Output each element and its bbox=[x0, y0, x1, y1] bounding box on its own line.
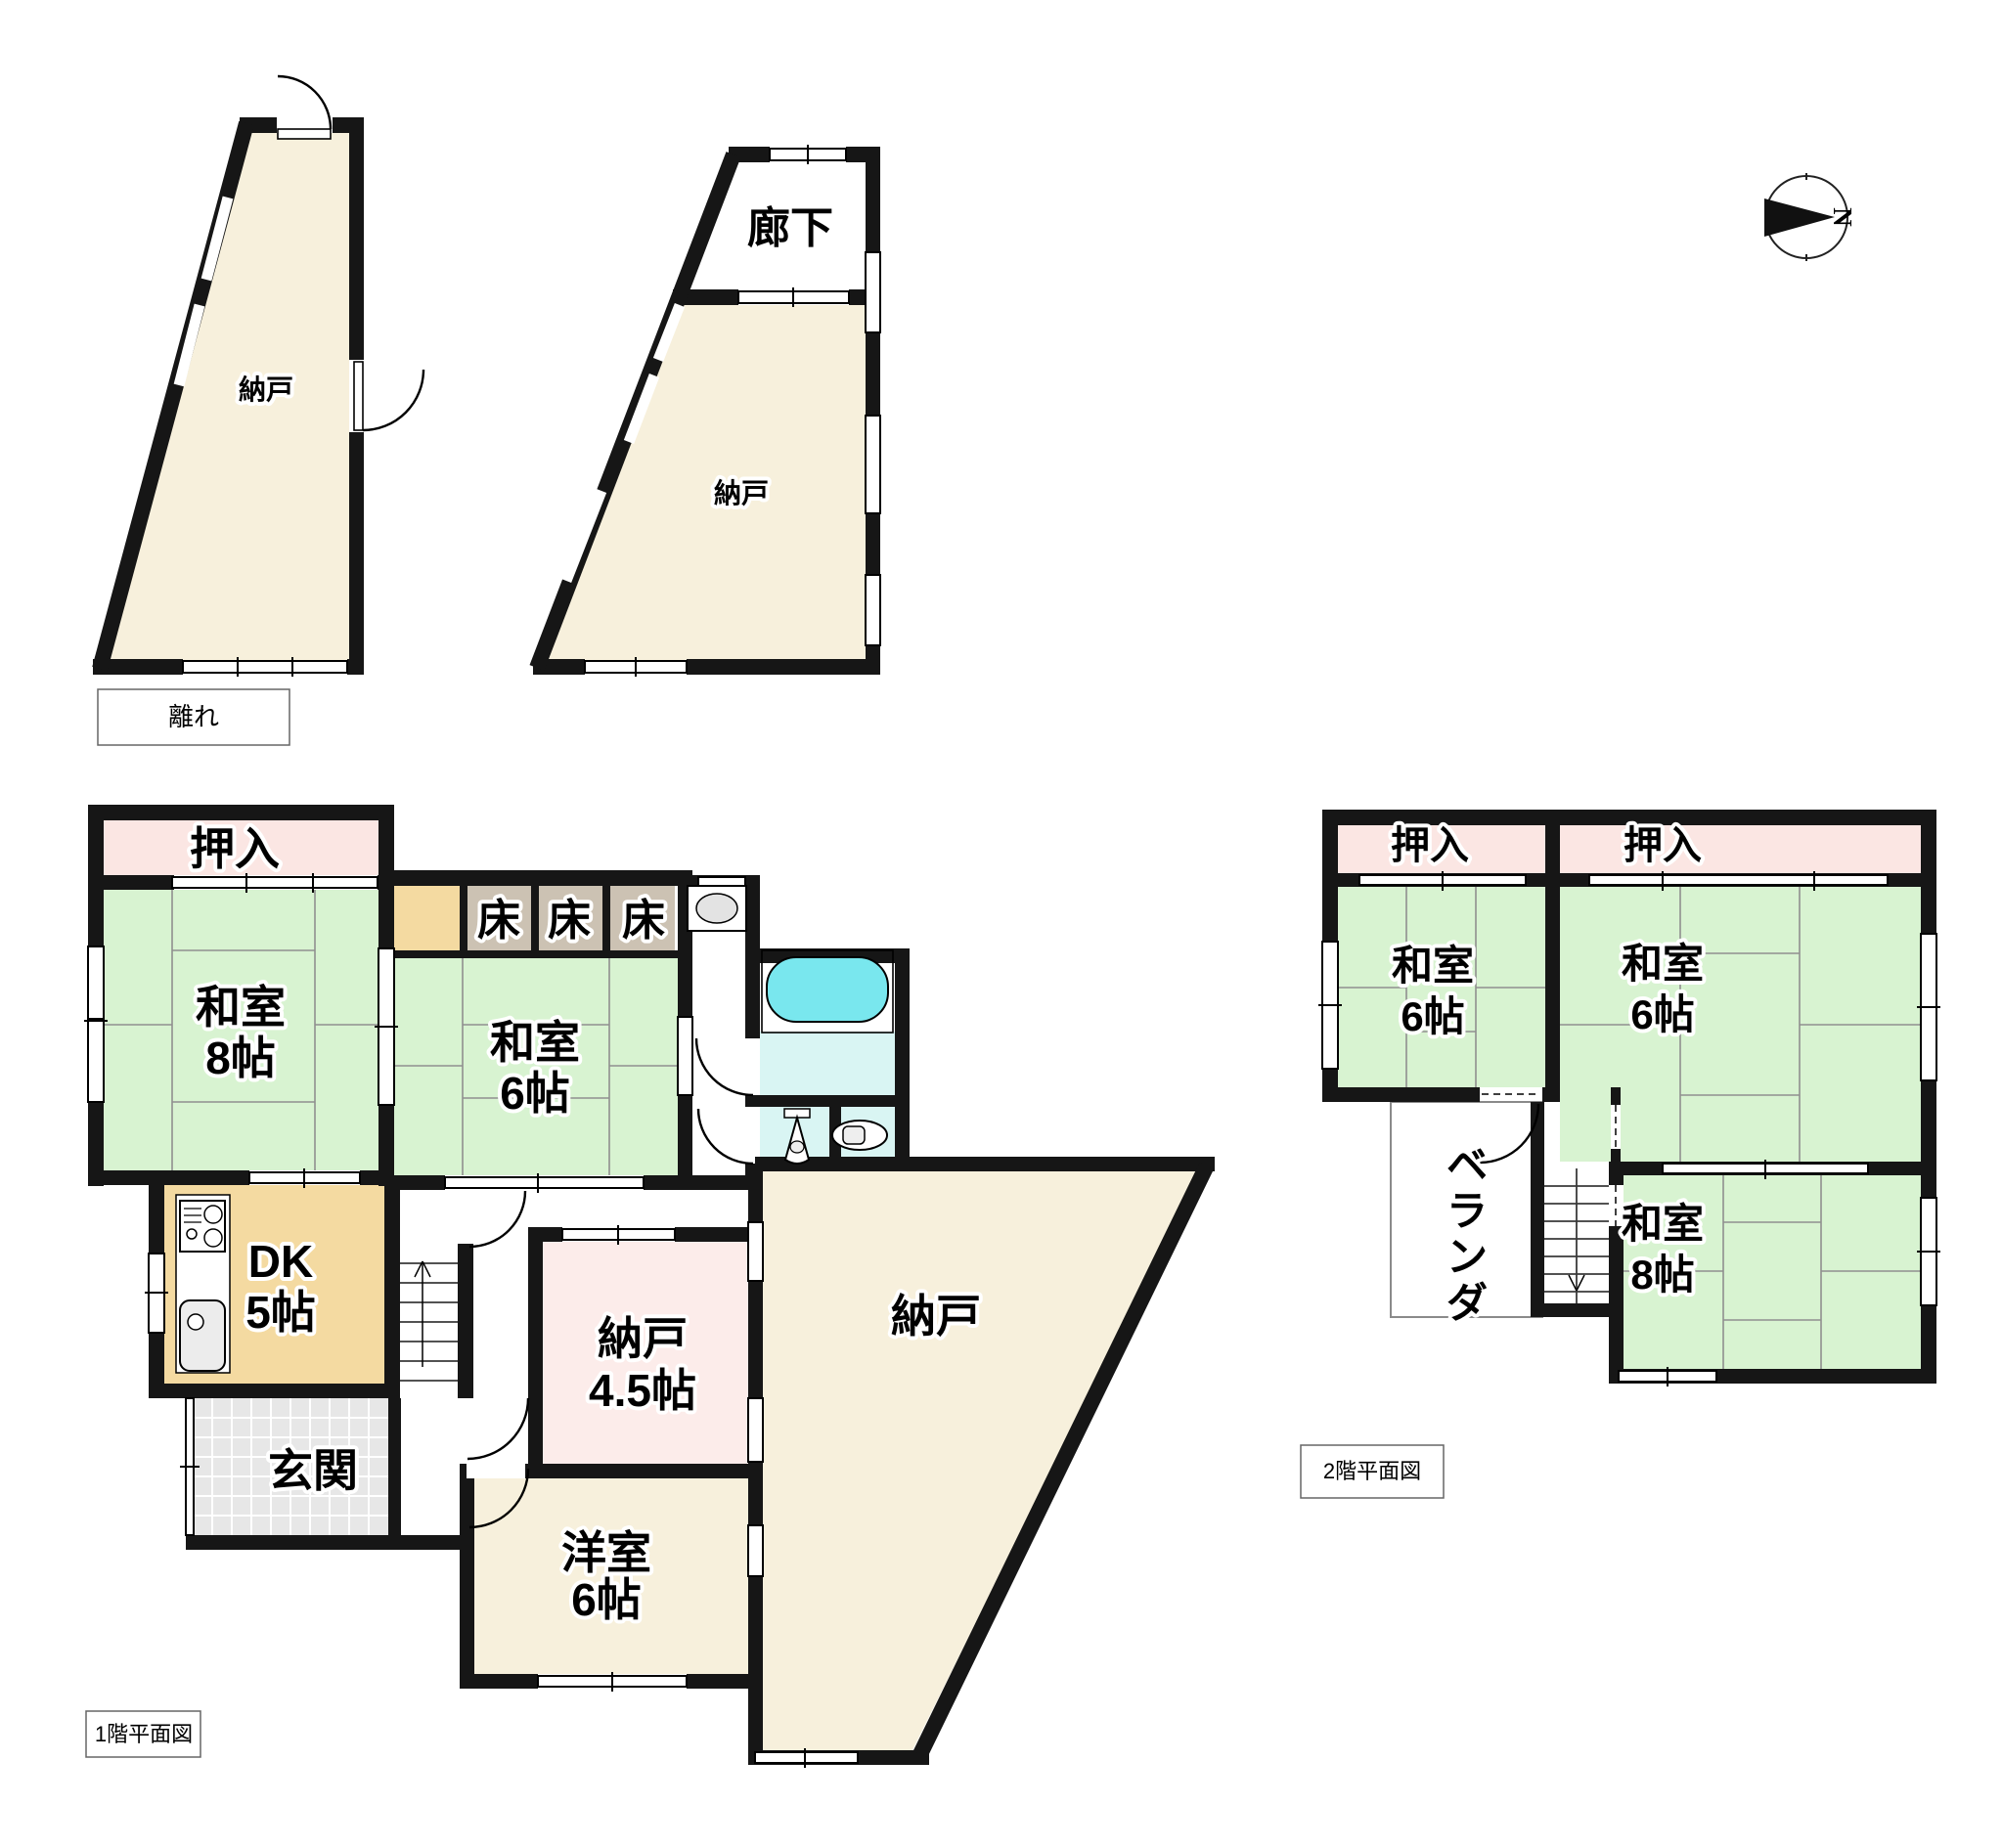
f1-washitsu8-size: 8帖 bbox=[205, 1033, 276, 1083]
f2-caption: 2階平面図 bbox=[1301, 1445, 1444, 1498]
f1-youshitsu-size: 6帖 bbox=[571, 1574, 642, 1625]
f2-washitsu6r-size: 6帖 bbox=[1630, 991, 1694, 1037]
room-f2-oshiire-right bbox=[1560, 825, 1921, 873]
door-arc bbox=[698, 1109, 753, 1164]
f1-washitsu6-name: 和室 bbox=[490, 1017, 580, 1068]
annex-building: 納戸 廊下 納戸 離れ bbox=[93, 76, 880, 745]
room-f1-nando bbox=[763, 1171, 1199, 1750]
annex-room2-label: 納戸 bbox=[714, 477, 769, 508]
annex-room2 bbox=[539, 305, 872, 661]
kitchen-counter bbox=[176, 1195, 230, 1373]
stairs-down-icon bbox=[1544, 1168, 1609, 1303]
f1-toko2-label: 床 bbox=[548, 897, 591, 945]
annex-caption: 離れ bbox=[98, 689, 289, 745]
f1-washitsu8-name: 和室 bbox=[196, 982, 286, 1033]
toilet-icon bbox=[832, 1121, 887, 1150]
door-arc bbox=[467, 1398, 528, 1459]
f2-washitsu8-size: 8帖 bbox=[1630, 1252, 1694, 1298]
floor1-plan: 押入 和室 8帖 床 床 床 和室 6帖 DK 5帖 玄関 納戸 4.5帖 洋室… bbox=[84, 805, 1215, 1768]
f1-genkan-label: 玄関 bbox=[268, 1445, 358, 1496]
svg-text:ベ: ベ bbox=[1446, 1142, 1488, 1188]
f2-washitsu6r-name: 和室 bbox=[1622, 941, 1704, 987]
floorplan-page: 納戸 廊下 納戸 離れ N bbox=[0, 0, 2002, 1848]
annex-caption-text: 離れ bbox=[168, 702, 219, 731]
f1-dk-name: DK bbox=[248, 1236, 313, 1287]
f2-washitsu6l-name: 和室 bbox=[1392, 943, 1474, 989]
stairs-up-icon bbox=[400, 1261, 458, 1381]
bathtub-icon bbox=[762, 950, 893, 1033]
annex-corridor-label: 廊下 bbox=[747, 204, 833, 252]
sink-icon bbox=[180, 1300, 225, 1371]
stove-icon bbox=[180, 1201, 225, 1252]
floorplan-drawing: 納戸 廊下 納戸 離れ N bbox=[0, 0, 2002, 1848]
f1-toko3-label: 床 bbox=[622, 897, 665, 945]
svg-text:ン: ン bbox=[1446, 1234, 1488, 1280]
floor2-plan: 押入 押入 和室 6帖 和室 6帖 和室 8帖 ベ ラ ン ダ 2階平面図 bbox=[1301, 810, 1940, 1498]
compass-icon: N bbox=[1764, 173, 1857, 261]
f1-oshiire-label: 押入 bbox=[190, 823, 280, 874]
f1-nando45-size: 4.5帖 bbox=[589, 1365, 696, 1416]
annex-room1-label: 納戸 bbox=[239, 374, 293, 405]
room-f1-bath-floor bbox=[760, 1032, 895, 1095]
door-arc bbox=[696, 1038, 753, 1095]
compass-north-label: N bbox=[1828, 207, 1857, 227]
f2-washitsu6l-size: 6帖 bbox=[1401, 993, 1464, 1039]
f1-toko1-label: 床 bbox=[477, 897, 520, 945]
washbasin-icon bbox=[688, 886, 746, 931]
f1-nando-label: 納戸 bbox=[891, 1291, 981, 1342]
door-arc bbox=[469, 1191, 525, 1247]
svg-text:ダ: ダ bbox=[1446, 1280, 1488, 1326]
f1-washitsu6-size: 6帖 bbox=[500, 1068, 570, 1119]
f2-veranda-label: ベ ラ ン ダ bbox=[1446, 1142, 1488, 1326]
f2-washitsu8-name: 和室 bbox=[1622, 1201, 1704, 1247]
svg-text:ラ: ラ bbox=[1446, 1188, 1488, 1234]
door-arc bbox=[363, 370, 423, 430]
f1-youshitsu-name: 洋室 bbox=[561, 1527, 651, 1578]
f2-caption-text: 2階平面図 bbox=[1323, 1459, 1421, 1483]
f2-oshiire-left-label: 押入 bbox=[1391, 824, 1469, 867]
f1-caption-text: 1階平面図 bbox=[95, 1722, 193, 1746]
f1-nando45-name: 納戸 bbox=[598, 1313, 688, 1364]
f1-caption: 1階平面図 bbox=[86, 1711, 200, 1757]
f1-dk-size: 5帖 bbox=[245, 1287, 316, 1338]
f1-itanoma bbox=[394, 886, 460, 950]
f2-oshiire-right-label: 押入 bbox=[1624, 824, 1702, 867]
